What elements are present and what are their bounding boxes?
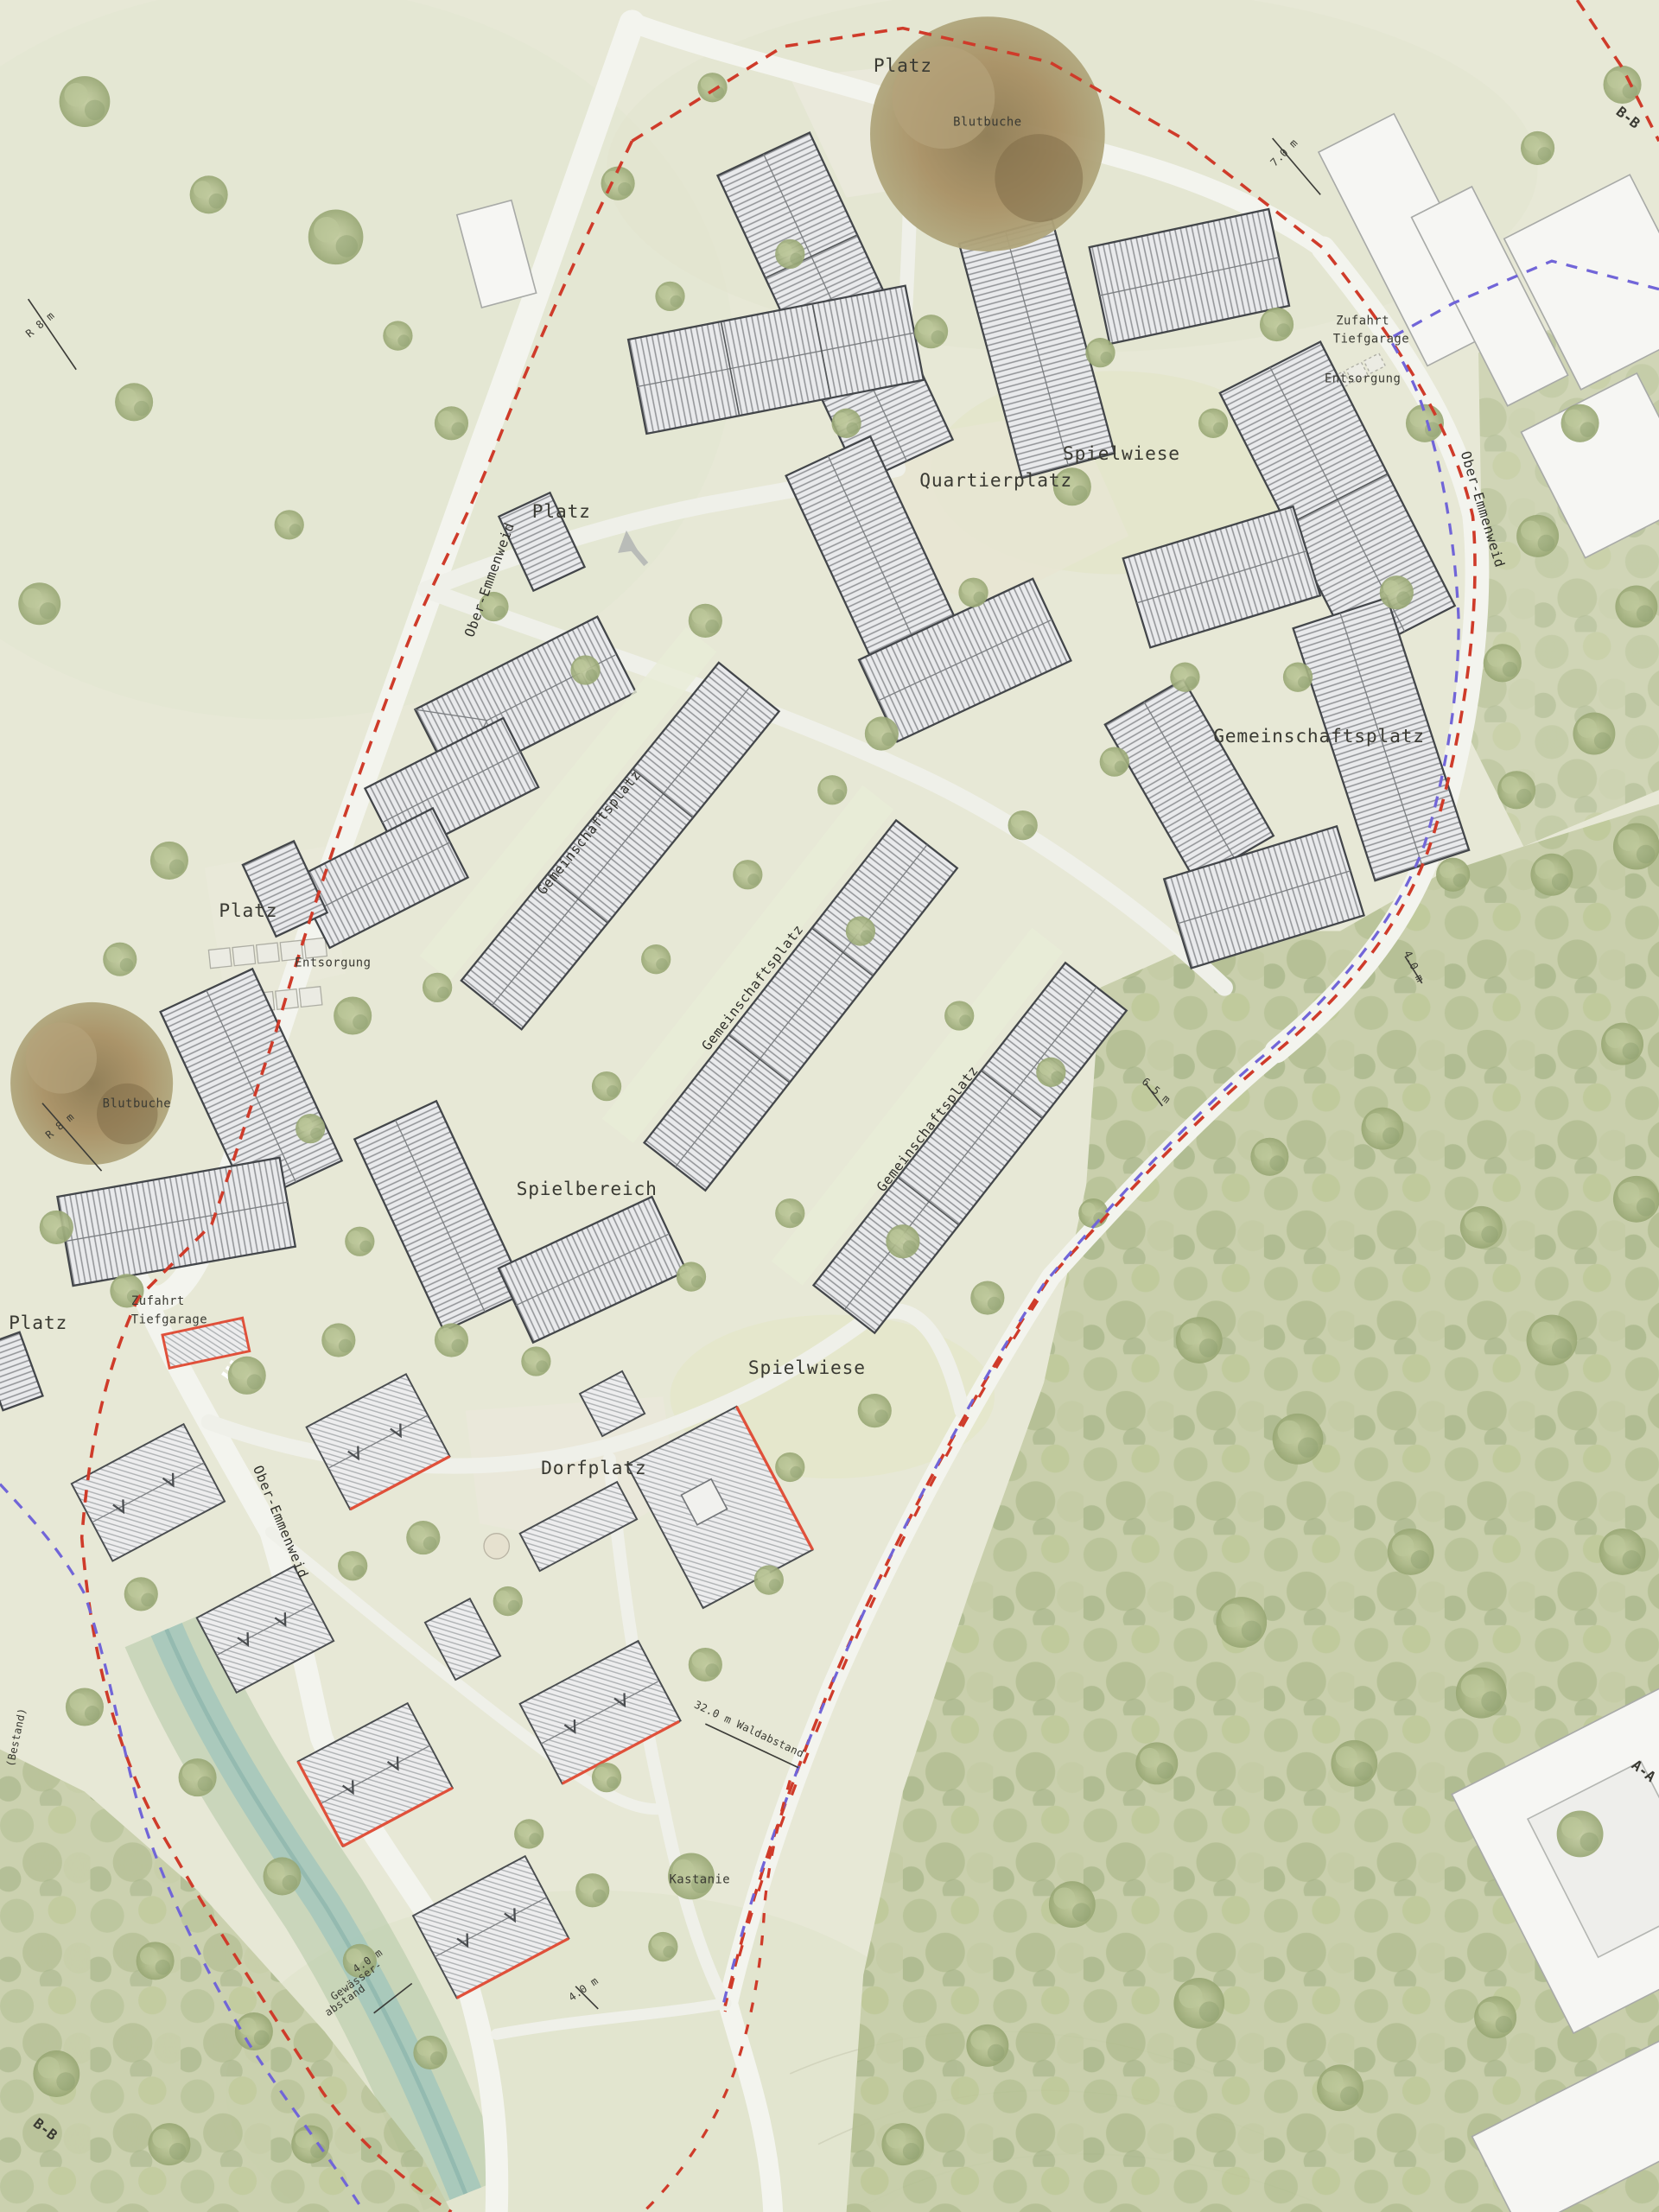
label-spielbereich: Spielbereich — [517, 1179, 658, 1200]
tree-icon — [1100, 747, 1129, 776]
sandpit — [484, 1534, 509, 1559]
tree-icon — [275, 510, 304, 539]
tree-icon — [689, 604, 722, 638]
tree-icon — [321, 1323, 355, 1357]
tree-icon — [228, 1357, 266, 1395]
tree-icon — [1173, 1978, 1224, 2029]
tree-icon — [1460, 1206, 1503, 1249]
tree-icon — [1273, 1414, 1324, 1465]
tree-icon — [493, 1586, 523, 1616]
tree-icon — [677, 1262, 706, 1291]
label-platz-left: Platz — [219, 900, 277, 922]
tree-icon — [1085, 338, 1115, 367]
tree-icon — [1260, 308, 1294, 341]
site-plan-page: Platz Blutbuche Spielwiese Quartierplatz… — [0, 0, 1659, 2212]
tree-icon — [858, 1394, 892, 1427]
tree-icon — [137, 1942, 175, 1980]
tree-icon — [1362, 1108, 1404, 1150]
tree-icon — [115, 383, 153, 421]
site-plan-map: Platz Blutbuche Spielwiese Quartierplatz… — [0, 0, 1659, 2212]
tree-icon — [846, 916, 875, 945]
tree-icon — [1601, 1023, 1643, 1065]
label-zufahrt-sw-2: Tiefgarage — [131, 1313, 207, 1326]
tree-icon — [1283, 663, 1313, 692]
label-entsorgung-east: Entsorgung — [1325, 372, 1401, 385]
tree-icon — [970, 1281, 1004, 1314]
label-blutbuche-north: Blutbuche — [953, 115, 1022, 129]
tree-icon — [514, 1819, 543, 1848]
tree-icon — [521, 1346, 550, 1376]
tree-icon — [1456, 1668, 1507, 1719]
tree-icon — [33, 2050, 79, 2097]
tree-icon — [1388, 1529, 1434, 1575]
tree-icon — [1613, 1176, 1659, 1223]
tree-icon — [1436, 858, 1470, 892]
label-spielwiese-north: Spielwiese — [1063, 443, 1180, 465]
tree-icon — [18, 582, 60, 625]
label-kastanie: Kastanie — [669, 1873, 730, 1887]
tree-icon — [886, 1224, 919, 1258]
tree-icon — [775, 239, 804, 269]
tree-icon — [817, 775, 847, 804]
label-blutbuche-west: Blutbuche — [103, 1097, 172, 1111]
tree-icon — [1317, 2064, 1363, 2111]
tree-icon — [383, 321, 412, 350]
label-platz-southwest: Platz — [9, 1313, 67, 1334]
tree-icon — [60, 76, 111, 127]
tree-icon — [235, 2012, 273, 2050]
tree-icon — [435, 406, 468, 440]
label-zufahrt-ne-2: Tiefgarage — [1333, 333, 1409, 346]
tree-icon — [338, 1551, 367, 1580]
tree-icon — [1599, 1529, 1646, 1575]
tree-icon — [592, 1763, 621, 1792]
tree-icon — [1216, 1597, 1267, 1648]
tree-icon — [689, 1648, 722, 1681]
label-gemeinschaftsplatz-east: Gemeinschaftsplatz — [1213, 726, 1425, 747]
tree-icon — [1250, 1138, 1288, 1176]
tree-icon — [1530, 854, 1573, 896]
tree-icon — [1170, 663, 1199, 692]
tree-icon — [150, 842, 188, 880]
tree-icon — [103, 943, 137, 976]
tree-icon — [1604, 66, 1642, 104]
label-zufahrt-sw-1: Zufahrt — [131, 1294, 185, 1308]
tree-icon — [1613, 823, 1659, 870]
tree-icon — [66, 1688, 104, 1726]
label-dorfplatz: Dorfplatz — [541, 1458, 646, 1479]
tree-icon — [179, 1758, 217, 1796]
tree-icon — [1527, 1315, 1578, 1366]
tree-icon — [958, 578, 988, 607]
tree-icon — [733, 860, 762, 889]
copper-beech-icon — [870, 16, 1105, 251]
tree-icon — [1516, 515, 1559, 557]
tree-icon — [1561, 404, 1599, 442]
label-platz-north: Platz — [874, 55, 932, 77]
copper-beech-icon — [10, 1002, 173, 1165]
tree-icon — [655, 282, 684, 311]
tree-icon — [124, 1577, 158, 1611]
tree-icon — [641, 944, 671, 974]
tree-icon — [413, 2036, 447, 2069]
tree-icon — [1008, 810, 1038, 840]
tree-icon — [775, 1198, 804, 1228]
tree-icon — [570, 655, 600, 684]
tree-icon — [296, 1114, 325, 1143]
tree-icon — [423, 973, 452, 1002]
tree-icon — [1049, 1881, 1096, 1928]
label-entsorgung-left: Entsorgung — [295, 956, 371, 969]
tree-icon — [1573, 712, 1615, 754]
tree-icon — [775, 1452, 804, 1482]
tree-icon — [263, 1857, 301, 1895]
label-spielwiese-south: Spielwiese — [748, 1357, 866, 1379]
tree-icon — [697, 73, 727, 102]
tree-icon — [1380, 575, 1414, 609]
tree-icon — [944, 1001, 974, 1030]
tree-icon — [1497, 771, 1535, 809]
tree-icon — [345, 1227, 374, 1256]
tree-icon — [406, 1521, 440, 1554]
tree-icon — [1521, 131, 1554, 165]
tree-icon — [914, 315, 948, 348]
label-platz-west: Platz — [532, 501, 591, 523]
tree-icon — [190, 175, 228, 213]
tree-icon — [1615, 586, 1657, 628]
tree-icon — [648, 1932, 677, 1961]
tree-icon — [831, 409, 861, 438]
tree-icon — [575, 1873, 609, 1907]
tree-icon — [1176, 1317, 1223, 1363]
tree-icon — [1331, 1740, 1377, 1787]
tree-icon — [592, 1071, 621, 1101]
tree-icon — [754, 1565, 784, 1594]
tree-icon — [1078, 1198, 1108, 1228]
tree-icon — [435, 1323, 468, 1357]
tree-icon — [1198, 409, 1228, 438]
tree-icon — [865, 716, 899, 750]
tree-icon — [334, 996, 372, 1034]
tree-icon — [1484, 644, 1522, 682]
tree-icon — [1036, 1058, 1065, 1087]
label-zufahrt-ne-1: Zufahrt — [1336, 315, 1389, 328]
tree-icon — [308, 209, 364, 264]
tree-icon — [148, 2123, 190, 2165]
tree-icon — [1135, 1742, 1178, 1784]
tree-icon — [40, 1211, 73, 1244]
tree-icon — [1557, 1811, 1604, 1858]
tree-icon — [881, 2123, 924, 2165]
tree-icon — [1474, 1996, 1516, 2038]
label-quartierplatz: Quartierplatz — [919, 470, 1072, 492]
tree-icon — [966, 2024, 1008, 2067]
